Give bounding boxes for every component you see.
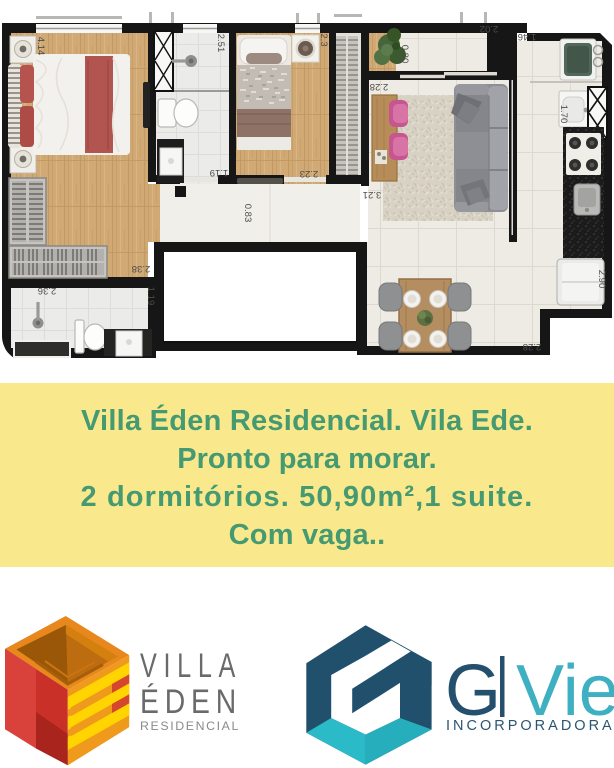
svg-text:1.70: 1.70 <box>558 105 569 124</box>
svg-text:2.3: 2.3 <box>318 33 329 46</box>
svg-text:INCORPORADORA: INCORPORADORA <box>446 718 614 734</box>
svg-text:RESIDENCIAL: RESIDENCIAL <box>140 721 240 733</box>
svg-text:0.83: 0.83 <box>242 204 253 223</box>
svg-text:1.46: 1.46 <box>518 31 537 42</box>
svg-text:VILLA: VILLA <box>140 647 242 685</box>
svg-text:2.28: 2.28 <box>523 341 542 352</box>
svg-text:0.80: 0.80 <box>399 45 410 64</box>
svg-text:2.38: 2.38 <box>132 263 151 274</box>
svg-text:1.19: 1.19 <box>145 287 156 306</box>
svg-text:2.90: 2.90 <box>596 270 607 289</box>
svg-text:3.21: 3.21 <box>363 189 382 200</box>
svg-text:ÉDEN: ÉDEN <box>140 683 242 721</box>
svg-text:2.23: 2.23 <box>300 168 319 179</box>
svg-text:2.51: 2.51 <box>215 34 226 53</box>
svg-text:2.28: 2.28 <box>370 81 389 92</box>
svg-text:1.19: 1.19 <box>210 167 229 178</box>
svg-text:4.14: 4.14 <box>35 37 46 56</box>
svg-text:2.02: 2.02 <box>480 23 499 34</box>
svg-text:2.36: 2.36 <box>38 285 57 296</box>
